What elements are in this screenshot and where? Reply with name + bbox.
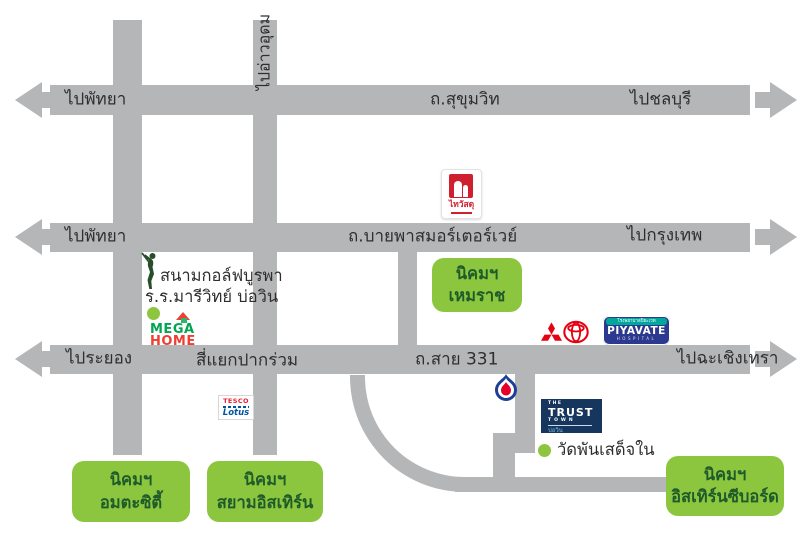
estate-hemaraj-line2: เหมราช [449, 285, 506, 307]
estate-eastern-seaboard: นิคมฯ อิสเทิร์นซีบอร์ด [666, 456, 784, 516]
estate-amata-line2: อมตะซิตี้ [100, 492, 162, 514]
megahome-word-home: HOME [150, 335, 196, 348]
access-road-eastern-seaboard [455, 477, 667, 492]
right-arrow-icon [753, 82, 797, 118]
temple-label: วัดพันเสด็จใน [557, 437, 655, 463]
road-label-to-ao-udom: ไปอ่าวอุดม [253, 14, 278, 90]
road-label-sukhumvit: ถ.สุขุมวิท [430, 92, 500, 109]
left-arrow-icon [15, 82, 59, 118]
route-map: ไปพัทยา ถ.สุขุมวิท ไปชลบุรี ไปพัทยา ถ.บา… [0, 0, 800, 536]
road-label-to-chachoengsao: ไปฉะเชิงเทรา [677, 351, 778, 368]
trust-sub-bowin: บ่อวิน [548, 427, 602, 434]
access-road-trust-step [493, 433, 535, 453]
access-road-trust-lower [493, 451, 515, 483]
estate-hemaraj: นิคมฯ เหมราช [432, 258, 522, 312]
road-label-to-rayong: ไประยอง [66, 351, 132, 368]
piyavate-hospital-logo: โรงพยาบาลปิยะเวท PIYAVATE HOSPITAL [603, 316, 670, 345]
trust-town-word: TOWN [548, 418, 602, 424]
road-label-pak-ruam: สี่แยกปากร่วม [196, 353, 298, 370]
estate-amata-line1: นิคมฯ [110, 469, 152, 491]
piyavate-hospital-word: HOSPITAL [603, 337, 670, 341]
estate-eastern-line2: อิสเทิร์นซีบอร์ด [671, 486, 779, 508]
road-label-to-pattaya-2: ไปพัทยา [65, 229, 126, 246]
toyota-logo-icon [563, 319, 589, 345]
curved-access-road [350, 375, 490, 492]
tesco-word: TESCO [219, 398, 253, 405]
road-label-to-bangkok: ไปกรุงเทพ [627, 228, 702, 245]
left-arrow-icon [15, 219, 59, 255]
thaiwatsadu-logo: ไทวัสดุ [441, 169, 482, 219]
school-label: ร.ร.มารีวิทย์ บ่อวิน [145, 284, 278, 310]
trust-name: TRUST [548, 407, 602, 419]
lotus-word: Lotus [219, 409, 253, 418]
road-label-bypass: ถ.บายพาสมอร์เตอร์เวย์ [348, 229, 517, 246]
tesco-lotus-logo: TESCO Lotus [218, 395, 254, 420]
estate-amata-city: นิคมฯ อมตะซิตี้ [72, 461, 190, 522]
road-label-to-pattaya-1: ไปพัทยา [65, 92, 126, 109]
estate-hemaraj-line1: นิคมฯ [456, 263, 498, 285]
estate-eastern-line1: นิคมฯ [704, 464, 746, 486]
right-arrow-icon [753, 219, 797, 255]
connector-road-331 [398, 252, 417, 345]
thaiwatsadu-house-icon [449, 174, 473, 198]
road-label-route-331: ถ.สาย 331 [415, 352, 498, 369]
temple-marker-dot [538, 444, 551, 457]
piyavate-thai-name: โรงพยาบาลปิยะเวท [606, 318, 667, 325]
mitsubishi-logo-icon [541, 322, 562, 341]
ptt-flame-icon [495, 374, 517, 401]
trust-town-logo: THE TRUST TOWN บ่อวิน [541, 399, 602, 433]
estate-siam-line1: นิคมฯ [244, 469, 286, 491]
megahome-logo: MEGA HOME [150, 312, 206, 348]
left-arrow-icon [15, 341, 59, 377]
estate-siam-line2: สยามอิสเทิร์น [217, 492, 314, 514]
estate-siam-eastern: นิคมฯ สยามอิสเทิร์น [207, 461, 323, 522]
road-label-to-chonburi: ไปชลบุรี [630, 92, 691, 109]
road-331 [50, 345, 750, 374]
access-road-trust-upper [515, 374, 535, 435]
thaiwatsadu-name: ไทวัสดุ [442, 201, 481, 210]
